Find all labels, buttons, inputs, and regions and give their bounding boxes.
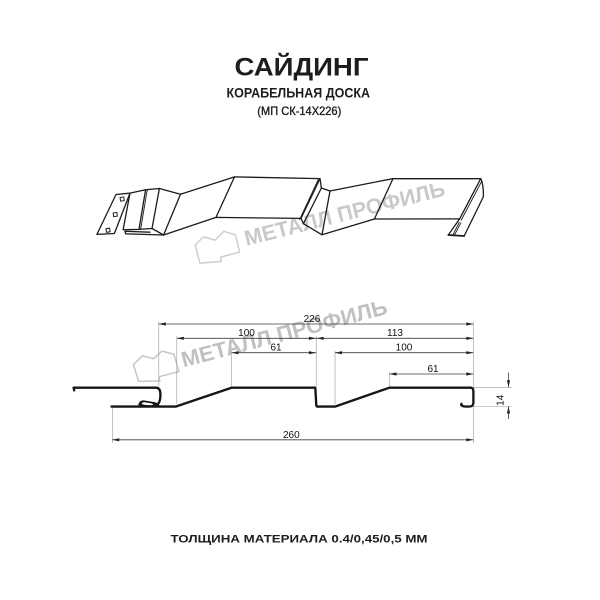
svg-text:14: 14: [496, 394, 507, 406]
svg-text:КОРАБЕЛЬНАЯ ДОСКА: КОРАБЕЛЬНАЯ ДОСКА: [227, 85, 371, 100]
svg-text:61: 61: [270, 342, 282, 353]
svg-text:100: 100: [238, 328, 255, 339]
svg-text:113: 113: [387, 328, 403, 339]
svg-text:(МП СК-14Х226): (МП СК-14Х226): [257, 105, 341, 118]
svg-text:226: 226: [304, 314, 321, 325]
svg-text:ТОЛЩИНА МАТЕРИАЛА 0.4/0,45/0,5: ТОЛЩИНА МАТЕРИАЛА 0.4/0,45/0,5 ММ: [171, 534, 428, 546]
svg-text:100: 100: [396, 342, 413, 353]
svg-text:260: 260: [283, 430, 300, 441]
svg-text:61: 61: [427, 364, 439, 375]
svg-text:САЙДИНГ: САЙДИНГ: [235, 54, 369, 82]
